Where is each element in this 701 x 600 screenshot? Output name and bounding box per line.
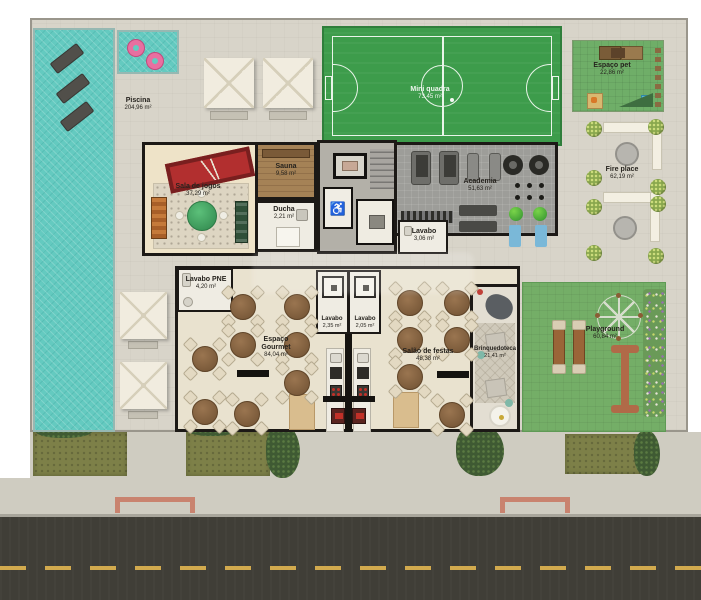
toy-ball [477, 289, 483, 295]
field-goal-right [552, 76, 559, 100]
stairs [370, 149, 394, 189]
grass-strip [186, 432, 270, 476]
bush-icon [650, 179, 666, 195]
web-post [616, 293, 621, 298]
bush-icon [648, 119, 664, 135]
restroom-left [316, 270, 349, 334]
toilet [183, 297, 193, 307]
service-fixture [369, 215, 385, 229]
bike-rack [500, 497, 570, 513]
pouf [505, 399, 513, 407]
dining-table [444, 290, 470, 316]
kettlebell [515, 195, 520, 200]
exercise-mat [509, 225, 521, 247]
deck-bench [128, 411, 158, 419]
climbing-web [597, 295, 641, 339]
bush-icon [586, 245, 602, 261]
grill [352, 408, 366, 424]
chair [219, 211, 228, 220]
restroom-right [348, 270, 381, 334]
web-post [616, 336, 621, 341]
shower-room [255, 200, 317, 252]
fire-pit-icon [615, 142, 639, 166]
play-table [485, 332, 507, 353]
burner [337, 388, 340, 391]
shower-fixture [296, 209, 308, 221]
field-center-circle [421, 65, 463, 107]
shower-stall [354, 276, 376, 298]
dining-table [284, 370, 310, 396]
bush-icon [586, 121, 602, 137]
sink [182, 273, 191, 287]
bean-bag [482, 291, 516, 322]
fireplace-bench [603, 192, 655, 203]
elevator [333, 153, 367, 179]
grill-coals [335, 413, 343, 419]
dining-table [444, 327, 470, 353]
soccer-field [322, 26, 562, 146]
dining-table [234, 401, 260, 427]
gym-restroom [398, 220, 448, 254]
kettlebell [527, 183, 532, 188]
playroom [470, 284, 520, 432]
sauna-room [255, 142, 317, 200]
umbrella-icon [263, 58, 313, 108]
kitchen-cross-wall [323, 396, 375, 402]
dining-table [230, 332, 256, 358]
gourmet-counter [237, 370, 269, 377]
street [0, 517, 701, 600]
sidewalk-lower [0, 478, 701, 514]
treadmill-belt [416, 155, 428, 177]
bush-icon [586, 170, 602, 186]
flower-bed [643, 289, 665, 417]
exercise-ball [533, 207, 547, 221]
pet-ramp [619, 93, 653, 107]
shower-stall [276, 227, 300, 247]
kitchen-wall [345, 334, 352, 432]
dining-table [284, 332, 310, 358]
grill [331, 408, 345, 424]
dining-table [192, 346, 218, 372]
fire-pit-icon [613, 216, 637, 240]
stove [357, 367, 369, 379]
elliptical [489, 153, 501, 181]
pet-area [572, 40, 664, 112]
chair [197, 233, 206, 242]
weight-bench [459, 205, 497, 216]
spin-bike [529, 155, 549, 175]
weight-bench [459, 221, 497, 232]
party-counter [437, 371, 469, 378]
bike-rack [115, 497, 195, 513]
treadmill [439, 151, 459, 185]
picnic-table [573, 323, 585, 371]
spin-bike [503, 155, 523, 175]
burner [359, 388, 362, 391]
sink [330, 353, 342, 363]
central-core: ♿ [317, 140, 397, 254]
exercise-mat [535, 225, 547, 247]
grass-strip [565, 434, 643, 474]
drain [363, 285, 369, 291]
soccer-ball-icon [450, 98, 454, 102]
grass-strip [33, 432, 127, 476]
umbrella-icon [204, 58, 254, 108]
treadmill [411, 151, 431, 185]
treadmill-belt [444, 155, 456, 177]
bush-icon [650, 196, 666, 212]
round-table [187, 201, 217, 231]
sink [357, 353, 369, 363]
dining-table [439, 402, 465, 428]
play-table [485, 378, 507, 399]
pool-float-icon [147, 53, 163, 69]
kids-pool [117, 30, 179, 74]
accessible-wc: ♿ [323, 187, 353, 229]
exercise-ball [509, 207, 523, 221]
dining-table [397, 364, 423, 390]
bush-icon [648, 248, 664, 264]
dining-table [284, 294, 310, 320]
umbrella-icon [120, 292, 167, 339]
wheelchair-icon: ♿ [330, 201, 346, 216]
drain [331, 285, 337, 291]
service-room [356, 199, 394, 245]
street-center-line [0, 566, 701, 570]
deck-bench [210, 111, 248, 120]
bush-icon [586, 199, 602, 215]
playground-lawn [522, 282, 666, 432]
dining-table [397, 327, 423, 353]
pet-toy [591, 97, 597, 103]
game-room [142, 142, 258, 256]
pet-fence [655, 45, 661, 107]
dining-table [230, 294, 256, 320]
grill-coals [356, 413, 364, 419]
pool-float-icon [128, 40, 144, 56]
hedge [634, 430, 660, 476]
floor-plan: Piscina 204,96 m² Mini quadra 73,45 m² E [0, 0, 701, 600]
deck-bench [128, 341, 158, 349]
bar-cabinet [151, 197, 167, 239]
toilet [404, 226, 412, 236]
ball [499, 415, 504, 420]
shower-stall [322, 276, 344, 298]
chair [175, 211, 184, 220]
web-post [595, 313, 600, 318]
kettlebell [515, 183, 520, 188]
kettlebell [539, 195, 544, 200]
elliptical [467, 153, 479, 181]
chair [197, 189, 206, 198]
seesaw-bar [611, 405, 639, 413]
pet-bench-cushion [611, 48, 625, 58]
sauna-bench [262, 149, 310, 158]
deck-bench [269, 111, 307, 120]
sideboard [235, 201, 248, 243]
kettlebell [539, 183, 544, 188]
dining-table [192, 399, 218, 425]
kettlebell [527, 195, 532, 200]
dining-table [397, 290, 423, 316]
burner [332, 388, 335, 391]
stove [330, 367, 342, 379]
field-goal-left [325, 76, 332, 100]
hedge [266, 424, 300, 478]
seesaw [621, 349, 629, 413]
ball-pit [489, 405, 511, 427]
picnic-table [553, 323, 565, 371]
burner [364, 388, 367, 391]
umbrella-icon [120, 362, 167, 409]
seesaw-bar [611, 345, 639, 353]
elevator-car [342, 161, 358, 171]
